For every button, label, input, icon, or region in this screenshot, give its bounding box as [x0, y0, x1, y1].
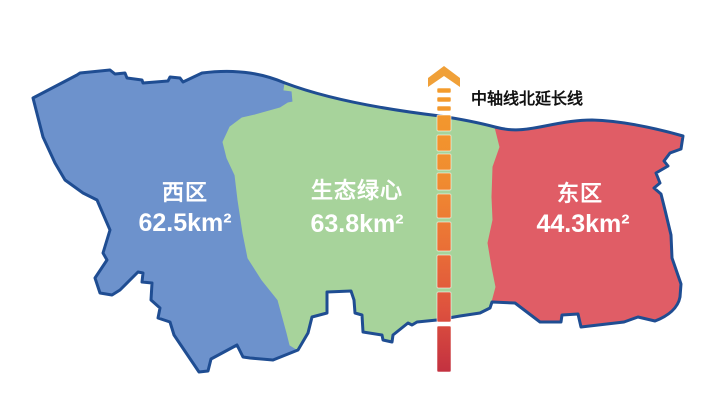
axis-dash-segment: [437, 255, 451, 288]
map-canvas: 中轴线北延长线 西区 62.5km² 生态绿心 63.8km² 东区 44.3k…: [0, 0, 718, 407]
region-west-label: 西区: [162, 180, 208, 205]
axis-dash-segment: [437, 326, 451, 372]
axis-dash-segment: [437, 292, 451, 322]
region-green-heart-area: 63.8km²: [310, 210, 403, 238]
axis-label: 中轴线北延长线: [471, 89, 583, 108]
axis-dash-line: [437, 88, 451, 372]
axis-dash-segment: [437, 135, 451, 151]
region-west-area: 62.5km²: [138, 209, 231, 237]
north-arrow-icon: [428, 66, 460, 87]
axis-dash-segment: [437, 97, 451, 102]
region-green-heart-label: 生态绿心: [311, 178, 403, 203]
axis-dash-segment: [437, 173, 451, 190]
district-map-figure: 中轴线北延长线 西区 62.5km² 生态绿心 63.8km² 东区 44.3k…: [0, 0, 718, 407]
axis-dash-segment: [437, 222, 451, 251]
axis-dash-segment: [437, 194, 451, 218]
axis-dash-segment: [437, 154, 451, 170]
axis-dash-segment: [437, 88, 451, 93]
axis-dash-segment: [437, 106, 451, 111]
region-east-area: 44.3km²: [536, 210, 629, 238]
axis-dash-segment: [437, 115, 451, 131]
region-east-label: 东区: [557, 181, 603, 206]
